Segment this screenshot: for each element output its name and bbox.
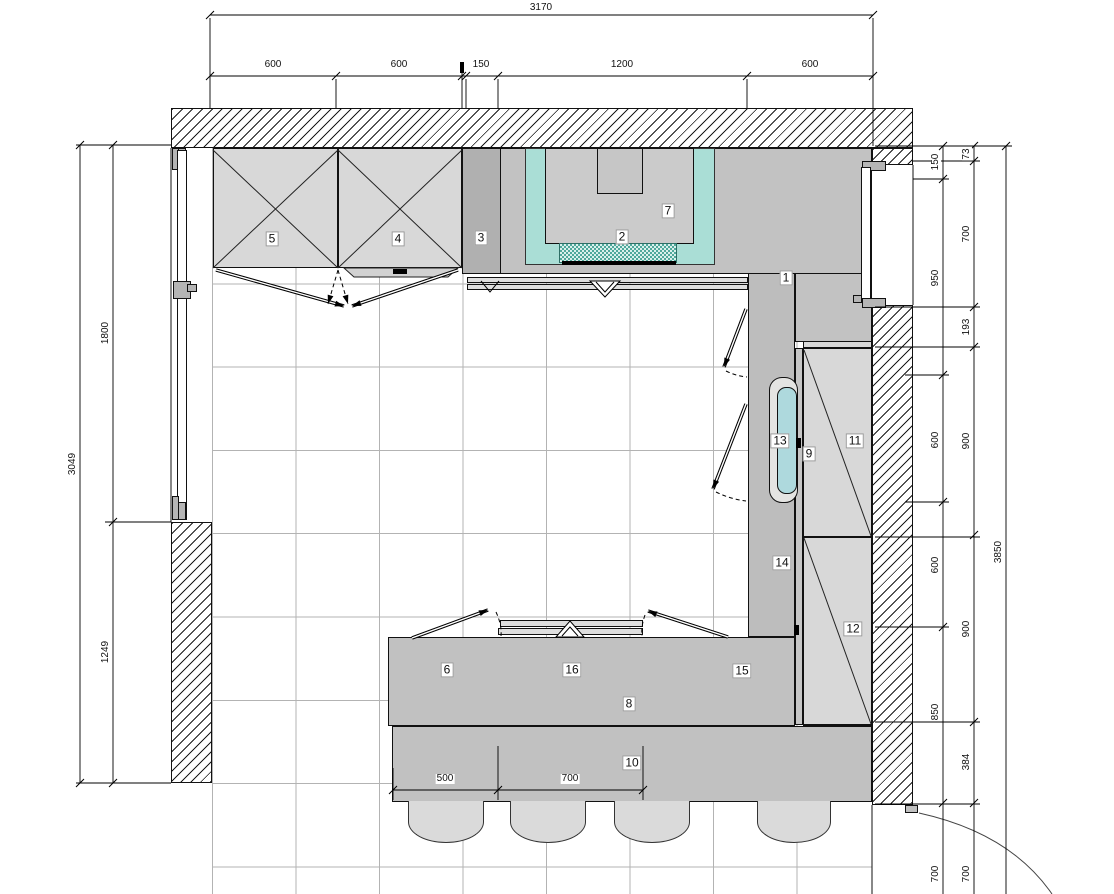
callout-5: 5	[266, 231, 279, 246]
callout-7: 7	[662, 203, 675, 218]
callout-8: 8	[623, 696, 636, 711]
dim-left-total: 3049	[68, 452, 78, 476]
callout-4: 4	[392, 231, 405, 246]
dim-right-total: 3850	[994, 540, 1004, 564]
wall-face-lines	[171, 148, 913, 894]
dim-right-mid-2: 193	[962, 318, 972, 337]
dim-right-mid-1: 700	[962, 225, 972, 244]
callout-13: 13	[770, 433, 789, 448]
dim-right-mid-5: 384	[962, 753, 972, 772]
callout-15: 15	[732, 663, 751, 678]
dim-right-inner-2: 600	[931, 431, 941, 450]
dim-island-1: 700	[561, 774, 580, 784]
dim-right-inner-0: 150	[931, 153, 941, 172]
callout-14: 14	[772, 555, 791, 570]
door-swing-lines	[216, 270, 747, 638]
swing-arrowheads	[328, 295, 730, 617]
dim-top-seg-2: 150	[472, 60, 491, 70]
dim-right-mid-4: 900	[962, 620, 972, 639]
callout-12: 12	[843, 621, 862, 636]
dim-top-seg-1: 600	[390, 60, 409, 70]
dim-left-seg-0: 1800	[101, 321, 111, 345]
dim-right-inner-5: 700	[931, 865, 941, 884]
dim-top-total: 3170	[529, 3, 553, 13]
dim-right-inner-1: 950	[931, 269, 941, 288]
callout-10: 10	[622, 755, 641, 770]
dim-top-seg-4: 600	[801, 60, 820, 70]
dim-top-seg-3: 1200	[610, 60, 634, 70]
dimension-lines	[76, 15, 1012, 894]
linework-layer	[0, 0, 1114, 894]
rail-chevrons	[481, 281, 620, 637]
callout-2: 2	[616, 229, 629, 244]
callout-11: 11	[846, 433, 864, 448]
dim-top-seg-0: 600	[264, 60, 283, 70]
dimension-ticks	[76, 11, 1010, 807]
dim-right-mid-3: 900	[962, 432, 972, 451]
callout-1: 1	[780, 270, 793, 285]
dim-right-mid-6: 700	[962, 865, 972, 884]
callout-9: 9	[803, 446, 816, 461]
kitchen-floor-plan: 1 2 3 4 5 6 7 8 9 10 11 12 13 14 15 16 3…	[0, 0, 1114, 894]
dim-right-mid-0: 73	[962, 147, 972, 160]
dim-island-0: 500	[436, 774, 455, 784]
callout-6: 6	[441, 662, 454, 677]
dim-right-inner-3: 600	[931, 556, 941, 575]
dim-right-inner-4: 850	[931, 703, 941, 722]
dim-bold-mark	[460, 62, 464, 73]
dim-left-seg-1: 1249	[101, 640, 111, 664]
callout-16: 16	[562, 662, 581, 677]
callout-3: 3	[475, 230, 488, 245]
